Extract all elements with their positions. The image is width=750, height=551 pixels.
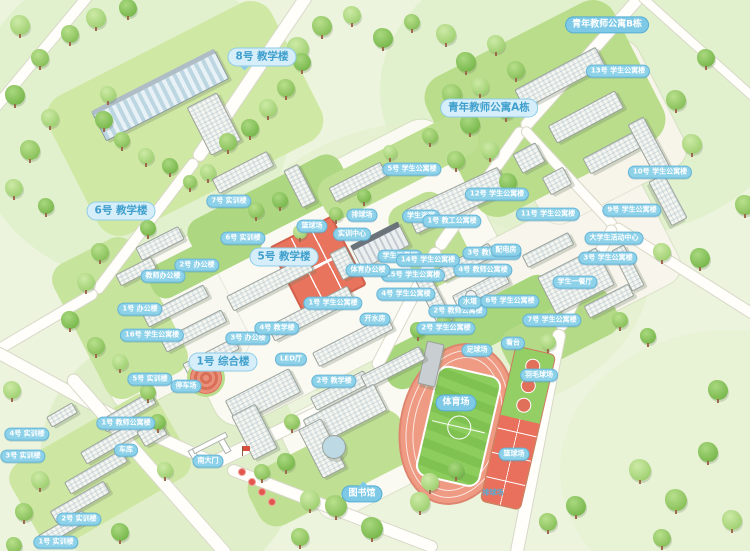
- tree-icon: [183, 175, 197, 189]
- map-label: 5号 实训楼: [127, 373, 172, 386]
- tree-icon: [357, 189, 371, 203]
- map-label: 排球场: [347, 209, 378, 222]
- map-label: 教师办公楼: [141, 270, 186, 283]
- tree-icon: [87, 337, 105, 355]
- tree-icon: [241, 119, 259, 137]
- tree-icon: [722, 510, 742, 530]
- map-label: 体育办公楼: [346, 264, 391, 277]
- tree-icon: [5, 179, 23, 197]
- tree-icon: [61, 311, 79, 329]
- map-label: 6号 实训楼: [220, 232, 265, 245]
- map-label: 10号 学生公寓楼: [628, 166, 692, 179]
- map-label: 1号 教工公寓楼: [422, 215, 481, 228]
- map-label: 水塔: [458, 296, 482, 309]
- tree-icon: [140, 220, 156, 236]
- tree-icon: [259, 99, 277, 117]
- map-label: 1号 教师公寓楼: [96, 417, 155, 430]
- tree-icon: [361, 517, 383, 539]
- tree-icon: [653, 243, 671, 261]
- tree-icon: [114, 132, 130, 148]
- map-label: 看台: [501, 337, 525, 350]
- tree-icon: [456, 52, 476, 72]
- map-label: 篮球场: [297, 220, 328, 233]
- flower-bed: [268, 498, 276, 506]
- tree-icon: [10, 15, 30, 35]
- flag-icon: [243, 446, 250, 451]
- tree-icon: [448, 462, 464, 478]
- map-label: 配电房: [491, 244, 522, 257]
- tree-icon: [112, 354, 128, 370]
- map-label: 羽毛球场: [520, 369, 558, 382]
- tree-icon: [277, 453, 295, 471]
- map-label: 1号 办公楼: [117, 303, 162, 316]
- tree-icon: [410, 492, 430, 512]
- tree-icon: [157, 462, 173, 478]
- tree-icon: [539, 513, 557, 531]
- tree-icon: [343, 6, 361, 24]
- map-label: 9号 学生公寓楼: [602, 204, 661, 217]
- map-label: 4号 教师公寓楼: [453, 264, 512, 277]
- map-label: 3号 实训楼: [0, 450, 45, 463]
- map-label: 2号 教学楼: [311, 375, 356, 388]
- tree-icon: [421, 473, 439, 491]
- map-label: 1号 学生公寓楼: [303, 297, 362, 310]
- tree-icon: [612, 312, 628, 328]
- tree-icon: [312, 16, 332, 36]
- tree-icon: [698, 442, 718, 462]
- map-label: LED厅: [275, 353, 307, 366]
- map-label: 16号 学生公寓楼: [120, 329, 184, 342]
- basketball-hoop-court: [515, 396, 533, 414]
- map-label: 1号 实训楼: [33, 536, 78, 549]
- tree-icon: [77, 273, 95, 291]
- map-label: 7号 学生公寓楼: [522, 314, 581, 327]
- map-label: 青年教师公寓A栋: [440, 98, 538, 117]
- tree-icon: [100, 86, 116, 102]
- tree-icon: [471, 77, 489, 95]
- map-label: 1号 综合楼: [189, 352, 258, 371]
- tree-icon: [284, 414, 300, 430]
- map-label: 7号 实训楼: [206, 195, 251, 208]
- tree-icon: [41, 109, 59, 127]
- map-label: 4号 教学楼: [254, 322, 299, 335]
- tree-icon: [300, 490, 320, 510]
- tree-icon: [31, 49, 49, 67]
- map-label: 13号 学生公寓楼: [586, 65, 650, 78]
- tree-icon: [219, 133, 237, 151]
- tree-icon: [447, 151, 465, 169]
- tree-icon: [640, 328, 656, 344]
- map-label: 车库: [114, 444, 138, 457]
- map-label: 12号 学生公寓楼: [465, 188, 529, 201]
- tree-icon: [540, 334, 556, 350]
- map-label: 4号 实训楼: [4, 428, 49, 441]
- map-label: 排球场: [483, 489, 504, 498]
- map-label: 篮球场: [499, 448, 530, 461]
- map-label: 青年教师公寓B栋: [565, 16, 649, 33]
- tree-icon: [422, 128, 438, 144]
- map-label: 5号 教学楼: [250, 247, 319, 266]
- map-label: 3号 学生公寓楼: [578, 252, 637, 265]
- map-label: 2号 学生公寓楼: [416, 322, 475, 335]
- map-label: 开水房: [360, 313, 391, 326]
- map-label: 5号 学生公寓楼: [382, 163, 441, 176]
- tree-icon: [291, 528, 309, 546]
- map-label: 11号 学生公寓楼: [516, 208, 580, 221]
- tree-icon: [697, 49, 715, 67]
- map-label: 8号 教学楼: [228, 47, 297, 66]
- tree-icon: [481, 141, 499, 159]
- map-label: 4号 学生公寓楼: [376, 288, 435, 301]
- map-label: 停车场: [171, 380, 202, 393]
- tree-icon: [682, 134, 702, 154]
- tree-icon: [629, 459, 651, 481]
- map-label: 15号 学生公寓楼: [381, 269, 445, 282]
- map-label: 实训中心: [333, 228, 371, 241]
- tree-icon: [383, 145, 397, 159]
- tree-icon: [31, 471, 49, 489]
- tree-icon: [20, 140, 40, 160]
- tree-icon: [15, 503, 33, 521]
- tree-icon: [277, 79, 295, 97]
- tree-icon: [735, 195, 750, 215]
- library-rotunda: [322, 435, 346, 459]
- tree-icon: [566, 496, 586, 516]
- tree-icon: [95, 111, 113, 129]
- map-label: 6号 学生公寓楼: [480, 295, 539, 308]
- map-label: 学生一餐厅: [553, 276, 598, 289]
- tree-icon: [665, 489, 687, 511]
- tree-icon: [140, 384, 156, 400]
- tree-icon: [487, 35, 505, 53]
- campus-map-image: 8号 教学楼6号 教学楼7号 实训楼6号 实训楼5号 教学楼2号 办公楼教师办公…: [0, 0, 750, 551]
- tree-icon: [404, 14, 420, 30]
- tree-icon: [86, 8, 106, 28]
- tree-icon: [666, 90, 686, 110]
- tree-icon: [6, 537, 22, 551]
- tree-icon: [436, 24, 456, 44]
- tree-icon: [111, 523, 129, 541]
- map-label: 图书馆: [341, 485, 382, 502]
- tree-icon: [138, 148, 154, 164]
- tree-icon: [653, 529, 671, 547]
- map-label: 2号 实训楼: [56, 513, 101, 526]
- map-label: 足球场: [462, 344, 493, 357]
- tree-icon: [272, 192, 288, 208]
- tree-icon: [119, 0, 137, 17]
- tree-icon: [162, 158, 178, 174]
- tree-icon: [5, 85, 25, 105]
- tree-icon: [708, 380, 728, 400]
- tree-icon: [38, 198, 54, 214]
- tree-icon: [3, 381, 21, 399]
- tree-icon: [507, 61, 525, 79]
- tree-icon: [91, 243, 109, 261]
- map-label: 6号 教学楼: [87, 201, 156, 220]
- flower-bed: [258, 488, 266, 496]
- flower-bed: [238, 468, 246, 476]
- tree-icon: [690, 248, 710, 268]
- tree-icon: [200, 164, 216, 180]
- tree-icon: [254, 464, 270, 480]
- flower-bed: [248, 478, 256, 486]
- tree-icon: [61, 25, 79, 43]
- map-label: 14号 学生公寓楼: [396, 254, 460, 267]
- map-label: 体育场: [435, 394, 476, 411]
- tree-icon: [329, 207, 343, 221]
- map-label: 大学生活动中心: [585, 232, 644, 245]
- tree-icon: [373, 28, 393, 48]
- map-label: 南大门: [193, 455, 224, 468]
